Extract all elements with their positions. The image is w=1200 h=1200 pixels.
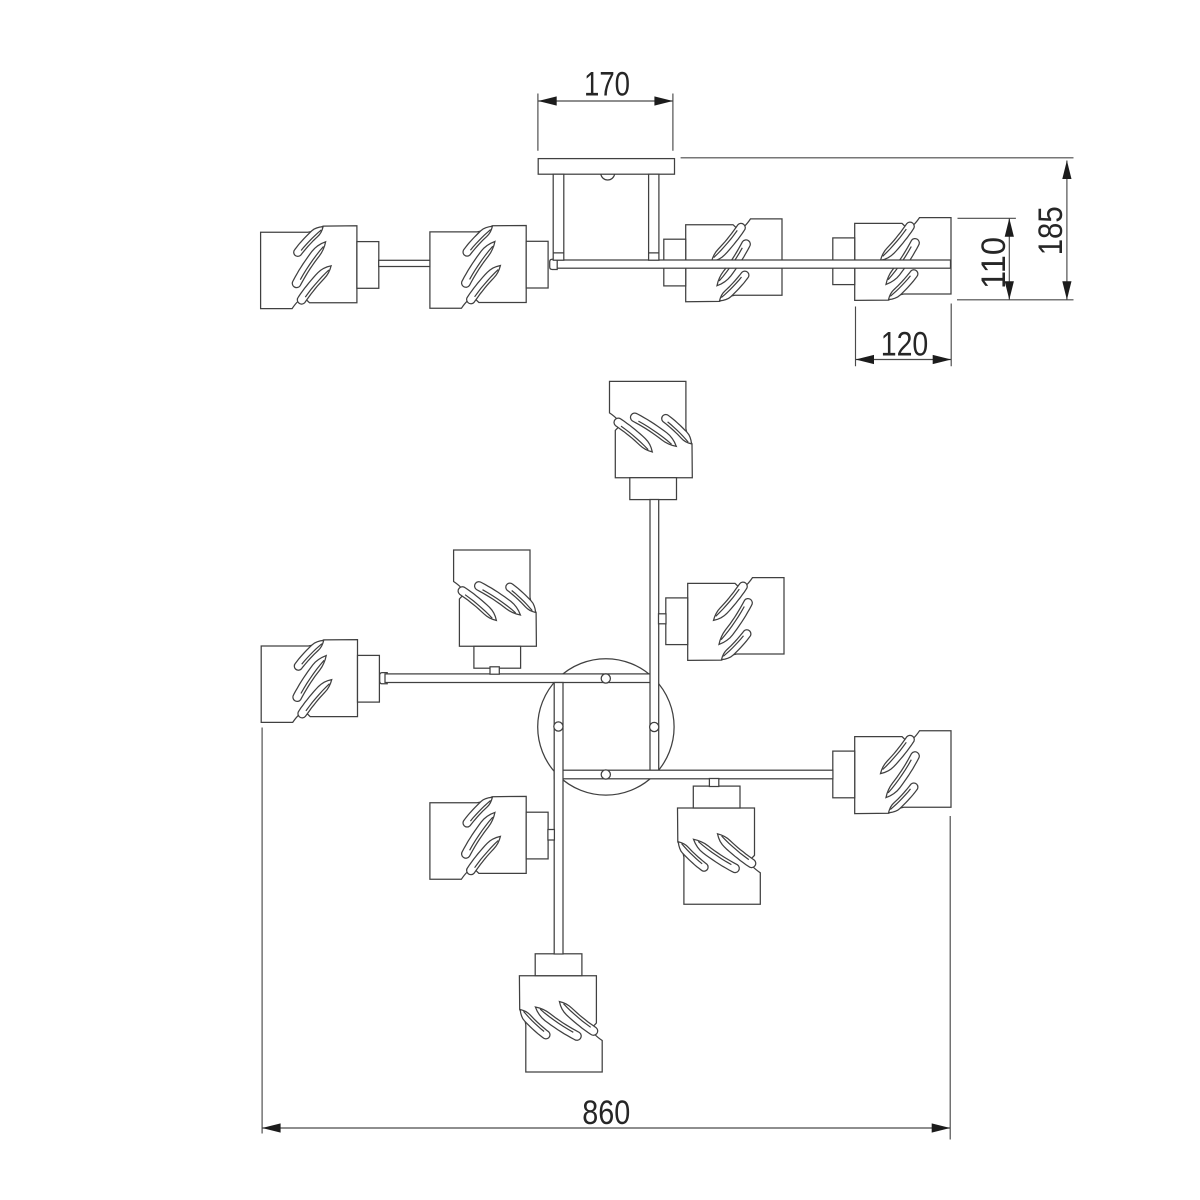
- svg-text:185: 185: [1032, 206, 1070, 255]
- svg-text:110: 110: [975, 237, 1013, 289]
- svg-text:860: 860: [582, 1094, 630, 1132]
- svg-text:120: 120: [881, 325, 929, 363]
- svg-text:170: 170: [584, 65, 630, 103]
